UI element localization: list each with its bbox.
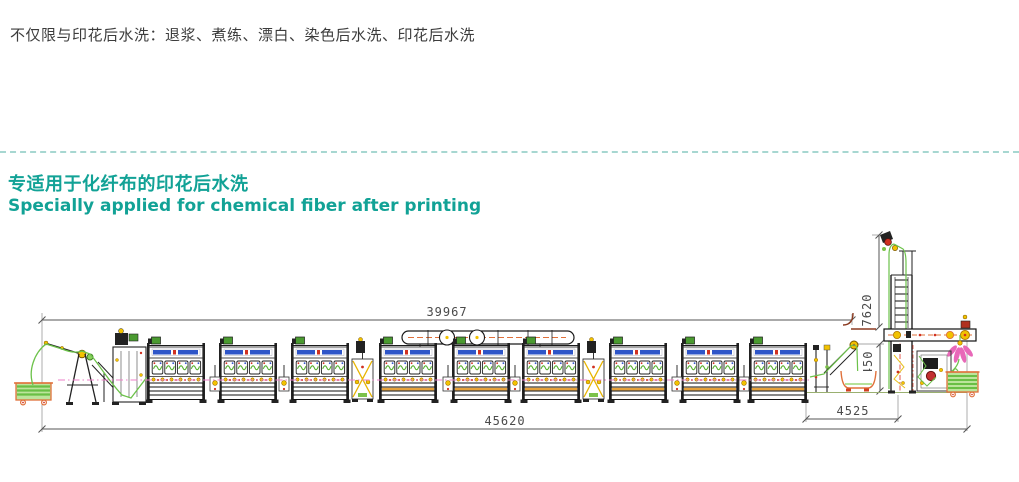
intro-note: 不仅限与印花后水洗：退浆、煮练、漂白、染色后水洗、印花后水洗 xyxy=(10,24,475,45)
dim-delivery-length: 4525 xyxy=(837,404,870,418)
dim-machine-length: 39967 xyxy=(426,305,467,319)
washing-unit xyxy=(451,337,512,403)
washing-unit xyxy=(680,337,741,403)
heading-english: Specially applied for chemical fiber aft… xyxy=(8,196,481,216)
washing-unit xyxy=(748,337,809,403)
washing-unit xyxy=(608,337,669,403)
unit-connector xyxy=(210,365,220,391)
washing-units-layer xyxy=(146,337,809,403)
unit-connector xyxy=(739,365,749,391)
machine-line-diagram: 39967 45620 4525 2450 7620 xyxy=(0,225,1019,482)
washing-unit xyxy=(146,337,207,403)
pump-station xyxy=(352,338,373,403)
leader-hook-top xyxy=(843,313,853,325)
heated-tank-stripe xyxy=(752,388,804,391)
washing-unit xyxy=(521,337,582,403)
pump-station xyxy=(583,338,604,403)
delivery-tower xyxy=(880,231,916,394)
diagram-svg: 39967 45620 4525 2450 7620 xyxy=(0,225,1019,482)
input-cloth-cart xyxy=(14,383,53,405)
brochure-page: 不仅限与印花后水洗：退浆、煮练、漂白、染色后水洗、印花后水洗 专适用于化纤布的印… xyxy=(0,0,1019,482)
dashed-divider xyxy=(0,151,1019,153)
heading-chinese: 专适用于化纤布的印花后水洗 xyxy=(8,170,249,196)
heated-tank-stripe xyxy=(525,388,577,391)
output-cloth-cart xyxy=(946,369,980,397)
unit-connector xyxy=(672,365,682,391)
dim-overall-length: 45620 xyxy=(484,414,525,428)
dim-tower-height: 7620 xyxy=(860,294,874,327)
heated-tank-stripe xyxy=(455,388,507,391)
washing-unit xyxy=(290,337,351,403)
washing-unit xyxy=(218,337,279,403)
unit-connector xyxy=(279,365,289,391)
exhaust-duct xyxy=(402,330,574,349)
unit-connector xyxy=(443,365,453,391)
unit-connector xyxy=(510,365,520,391)
washing-unit xyxy=(378,337,439,403)
delivery-beam xyxy=(884,315,976,341)
heated-tank-stripe xyxy=(382,388,434,391)
scray-trough xyxy=(841,371,876,388)
heated-tank-stripe xyxy=(684,388,736,391)
heated-tank-stripe xyxy=(612,388,664,391)
